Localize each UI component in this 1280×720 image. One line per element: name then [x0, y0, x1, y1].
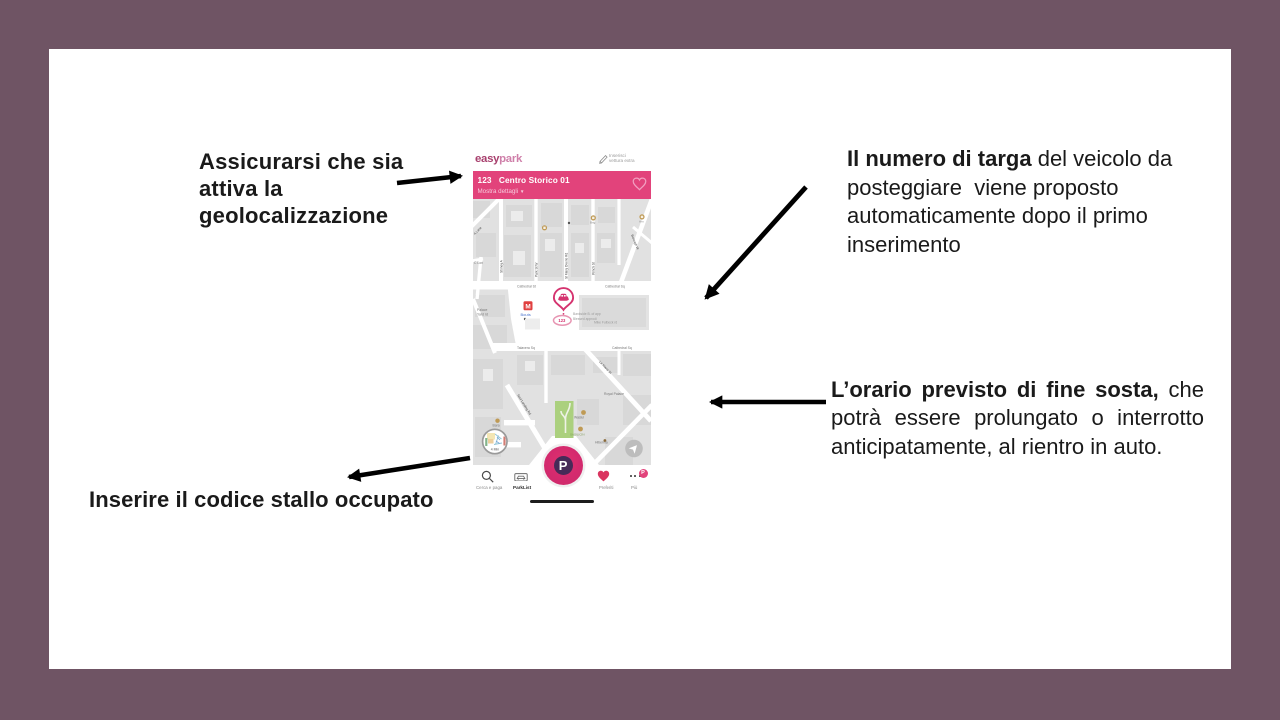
svg-text:Talavera Sq: Talavera Sq [517, 346, 535, 350]
svg-text:C Lon: C Lon [474, 261, 483, 265]
svg-text:123: 123 [558, 318, 566, 323]
svg-text:St Mary Overie Rd: St Mary Overie Rd [564, 253, 568, 279]
svg-text:Winch St: Winch St [591, 262, 595, 275]
svg-text:Park St W: Park St W [534, 263, 538, 277]
svg-text:4 Min: 4 Min [490, 447, 498, 451]
svg-text:Mike Fulbeck rd: Mike Fulbeck rd [594, 321, 617, 325]
svg-text:Cathedral St: Cathedral St [517, 285, 536, 289]
svg-text:Royal Palace: Royal Palace [604, 392, 624, 396]
svg-text:Yard rd: Yard rd [477, 312, 488, 316]
svg-text:Palace: Palace [477, 308, 487, 312]
svg-text:Brig: Brig [590, 221, 596, 225]
svg-text:Bara: Bara [492, 423, 499, 427]
svg-text:SASILICIN: SASILICIN [570, 433, 585, 437]
svg-text:Cathedral Sq: Cathedral Sq [612, 346, 632, 350]
svg-text:Stoney A: Stoney A [499, 259, 503, 273]
svg-text:Bouts: Bouts [520, 312, 530, 317]
svg-text:Bankside B. of app: Bankside B. of app [573, 312, 601, 316]
svg-text:M: M [525, 304, 530, 311]
svg-text:Arn: Arn [639, 220, 644, 224]
svg-text:Wasiul: Wasiul [574, 416, 584, 420]
svg-text:Cathedral Sq: Cathedral Sq [605, 285, 625, 289]
